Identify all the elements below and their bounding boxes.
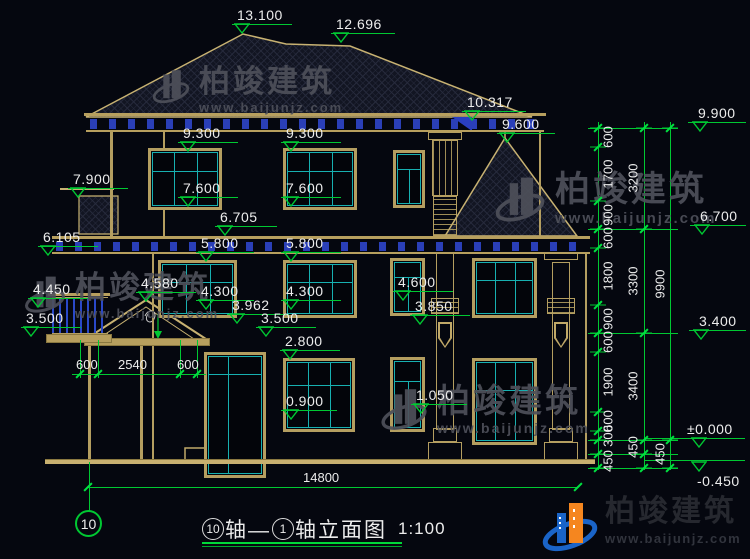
title-axis-bubble-right: 1 <box>272 518 294 540</box>
dimension-label: 1700 <box>601 160 616 189</box>
elevation-marker: 9.600 <box>497 116 555 133</box>
brand-logo-icon <box>540 497 600 555</box>
dimension-label: 450 <box>653 443 668 465</box>
dimension-label: 3400 <box>626 372 641 401</box>
elevation-marker: 7.600 <box>178 180 238 197</box>
dimension-label: 600 <box>601 227 616 249</box>
elevation-marker: 4.600 <box>393 274 453 291</box>
dimension-label: 1900 <box>601 368 616 397</box>
watermark: 柏竣建筑 www.baijunjz.com <box>378 384 590 436</box>
drawing-title: 10 轴— 1 轴立面图 1:100 <box>202 514 446 544</box>
elevation-marker: 3.500 <box>256 310 316 327</box>
brand-logo: 柏竣建筑 www.baijunjz.com <box>540 497 741 555</box>
dimension-label: 600 <box>601 126 616 148</box>
dimension-label: 3300 <box>626 267 641 296</box>
elevation-marker: 2.800 <box>280 333 340 350</box>
title-text: 轴— <box>225 514 271 544</box>
watermark-brand: 柏竣建筑 <box>199 66 343 97</box>
elevation-marker: 9.900 <box>688 105 746 122</box>
watermark-url: www.baijunjz.com <box>199 100 343 115</box>
title-scale: 1:100 <box>398 519 446 539</box>
elevation-marker: 7.900 <box>68 171 128 188</box>
dimension-line <box>72 374 206 375</box>
axis-bubble-label: 10 <box>81 516 97 532</box>
elevation-marker: 6.700 <box>690 208 746 225</box>
title-underline-2 <box>202 546 402 547</box>
elevation-marker: 4.580 <box>136 275 196 292</box>
axis-bubble-10: 10 <box>75 510 102 537</box>
dimension-label: 600 <box>76 357 98 372</box>
dimension-label: 900 <box>601 204 616 226</box>
elevation-marker: 5.800 <box>281 235 341 252</box>
brand-icon <box>150 66 192 108</box>
dimension-label: 14800 <box>303 470 339 485</box>
elevation-marker: 10.317 <box>462 94 526 111</box>
elevation-marker: 7.600 <box>281 180 341 197</box>
elevation-marker: 1.050 <box>411 387 467 404</box>
title-axis-bubble-left: 10 <box>202 518 224 540</box>
elevation-marker: 5.800 <box>196 235 254 252</box>
elevation-marker: 4.300 <box>281 283 341 300</box>
dimension-label: 3200 <box>626 164 641 193</box>
elevation-marker: 9.300 <box>178 125 238 142</box>
elevation-marker: 6.705 <box>215 209 277 226</box>
elevation-marker: 9.300 <box>281 125 341 142</box>
dimension-label: 600 <box>601 331 616 353</box>
dimension-label: 450 <box>601 450 616 472</box>
dimension-label: 450 <box>626 436 641 458</box>
elevation-marker: 3.400 <box>689 313 746 330</box>
dimension-line <box>88 487 578 488</box>
cad-canvas: 柏竣建筑 www.baijunjz.com 柏竣建筑 www.baijunjz.… <box>0 0 750 559</box>
dimension-label: 2540 <box>118 357 147 372</box>
elevation-marker: 4.450 <box>28 281 88 298</box>
watermark: 柏竣建筑 www.baijunjz.com <box>150 66 343 115</box>
brand-logo-url: www.baijunjz.com <box>605 531 741 546</box>
brand-logo-text: 柏竣建筑 <box>605 497 741 527</box>
brand-icon <box>492 172 548 228</box>
elevation-marker: 3.850 <box>410 298 470 315</box>
watermark-url: www.baijunjz.com <box>437 420 590 436</box>
elevation-marker: 3.500 <box>21 310 81 327</box>
title-text: 轴立面图 <box>295 514 387 544</box>
dimension-label: 1800 <box>601 262 616 291</box>
dimension-label: 600 <box>177 357 199 372</box>
elevation-marker: ±0.000 <box>645 421 745 438</box>
dimension-label: 9900 <box>653 270 668 299</box>
title-underline <box>202 542 402 544</box>
elevation-marker: 6.105 <box>38 229 98 246</box>
dimension-tick-slash <box>573 482 582 491</box>
elevation-marker: 13.100 <box>232 7 292 24</box>
elevation-marker: 12.696 <box>331 16 395 33</box>
elevation-marker: 0.900 <box>281 393 337 410</box>
dimension-label: 900 <box>601 308 616 330</box>
